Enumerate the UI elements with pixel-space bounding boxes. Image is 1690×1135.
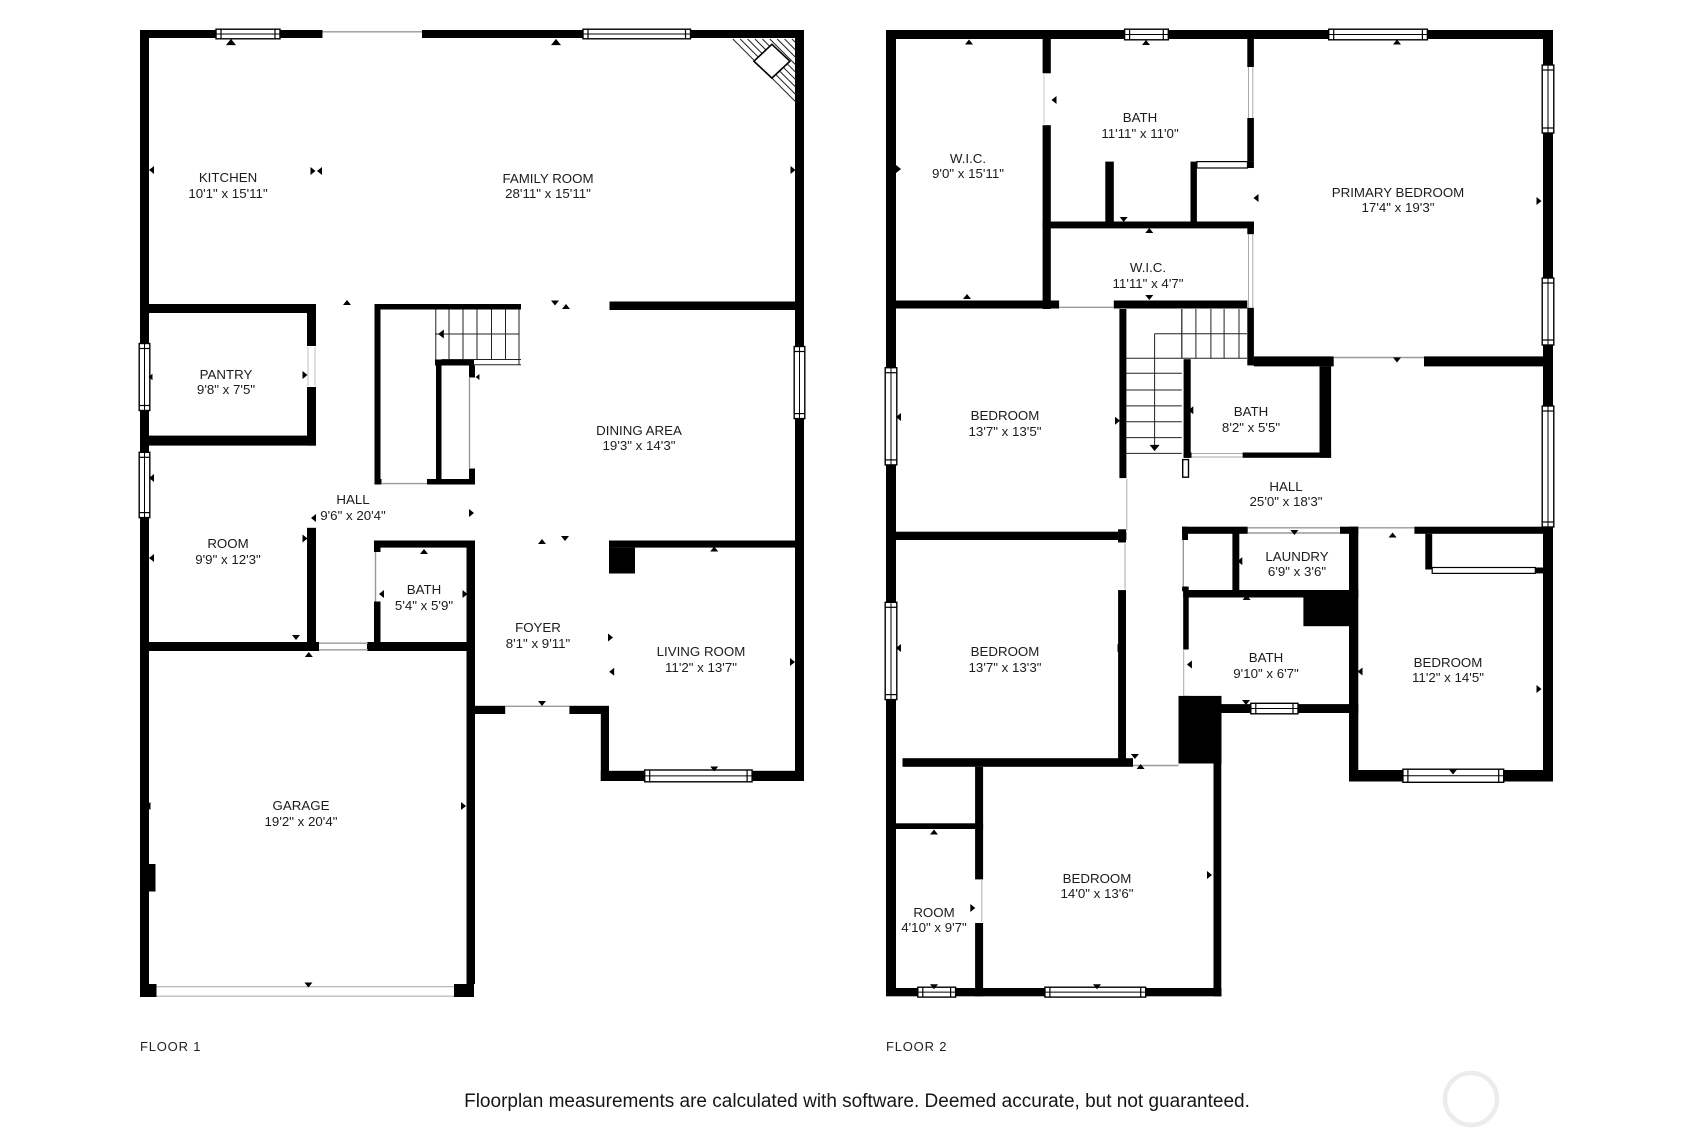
svg-text:PRIMARY BEDROOM: PRIMARY BEDROOM (1332, 185, 1465, 200)
svg-text:FLOOR 1: FLOOR 1 (140, 1039, 201, 1054)
svg-text:9'8" x 7'5": 9'8" x 7'5" (197, 382, 255, 397)
svg-text:9'6" x 20'4": 9'6" x 20'4" (320, 508, 386, 523)
svg-text:8'2" x 5'5": 8'2" x 5'5" (1222, 420, 1280, 435)
svg-text:BATH: BATH (1234, 404, 1268, 419)
svg-text:FAMILY ROOM: FAMILY ROOM (502, 171, 593, 186)
svg-text:11'11" x 11'0": 11'11" x 11'0" (1101, 126, 1179, 141)
svg-text:KITCHEN: KITCHEN (199, 170, 257, 185)
svg-text:4'10" x 9'7": 4'10" x 9'7" (901, 920, 967, 935)
svg-text:BATH: BATH (1123, 110, 1157, 125)
svg-text:5'4" x 5'9": 5'4" x 5'9" (395, 598, 453, 613)
svg-text:LIVING ROOM: LIVING ROOM (657, 644, 746, 659)
svg-text:25'0" x 18'3": 25'0" x 18'3" (1250, 494, 1323, 509)
svg-text:13'7" x 13'3": 13'7" x 13'3" (969, 660, 1042, 675)
svg-text:10'1" x 15'11": 10'1" x 15'11" (188, 186, 268, 201)
svg-text:6'9" x 3'6": 6'9" x 3'6" (1268, 564, 1326, 579)
svg-text:W.I.C.: W.I.C. (1130, 260, 1166, 275)
svg-text:ROOM: ROOM (913, 905, 954, 920)
svg-text:W.I.C.: W.I.C. (950, 151, 986, 166)
svg-text:11'2" x 14'5": 11'2" x 14'5" (1412, 670, 1484, 685)
svg-text:28'11" x 15'11": 28'11" x 15'11" (505, 186, 591, 201)
svg-text:BEDROOM: BEDROOM (1414, 655, 1483, 670)
svg-text:BEDROOM: BEDROOM (971, 644, 1040, 659)
svg-text:8'1" x 9'11": 8'1" x 9'11" (506, 636, 571, 651)
svg-text:9'10" x 6'7": 9'10" x 6'7" (1233, 666, 1299, 681)
svg-text:DINING AREA: DINING AREA (596, 423, 682, 438)
svg-text:Floorplan measurements are cal: Floorplan measurements are calculated wi… (464, 1091, 1250, 1112)
svg-text:BEDROOM: BEDROOM (971, 408, 1040, 423)
svg-text:GARAGE: GARAGE (273, 798, 330, 813)
svg-text:HALL: HALL (336, 492, 369, 507)
svg-text:PANTRY: PANTRY (200, 367, 253, 382)
svg-text:BEDROOM: BEDROOM (1063, 871, 1132, 886)
svg-text:BATH: BATH (407, 582, 441, 597)
svg-text:ROOM: ROOM (207, 536, 248, 551)
svg-text:13'7" x 13'5": 13'7" x 13'5" (969, 424, 1042, 439)
svg-text:19'2" x 20'4": 19'2" x 20'4" (265, 814, 338, 829)
svg-text:9'9" x 12'3": 9'9" x 12'3" (195, 552, 261, 567)
svg-text:9'0" x 15'11": 9'0" x 15'11" (932, 166, 1004, 181)
svg-text:FLOOR 2: FLOOR 2 (886, 1039, 947, 1054)
svg-text:BATH: BATH (1249, 650, 1283, 665)
svg-text:LAUNDRY: LAUNDRY (1265, 549, 1328, 564)
svg-text:19'3" x 14'3": 19'3" x 14'3" (603, 438, 676, 453)
svg-text:14'0" x 13'6": 14'0" x 13'6" (1061, 886, 1134, 901)
svg-text:11'11" x 4'7": 11'11" x 4'7" (1113, 276, 1184, 291)
svg-text:FOYER: FOYER (515, 620, 561, 635)
svg-text:11'2" x 13'7": 11'2" x 13'7" (665, 660, 737, 675)
svg-text:17'4" x 19'3": 17'4" x 19'3" (1362, 200, 1435, 215)
svg-text:HALL: HALL (1269, 479, 1302, 494)
